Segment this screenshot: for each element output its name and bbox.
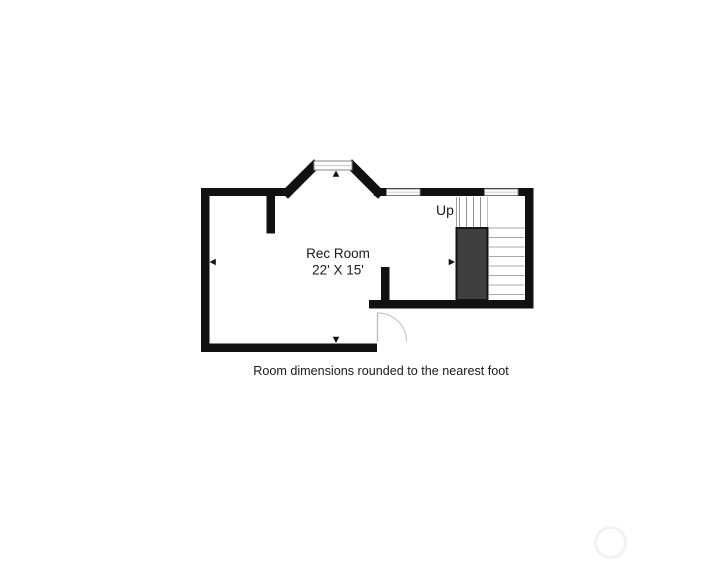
room-dimensions-label: 22' X 15' xyxy=(312,263,364,278)
window-top-right xyxy=(485,189,519,195)
wall-right xyxy=(525,188,534,309)
room-label: Rec Room xyxy=(306,246,370,261)
bay-window xyxy=(314,161,352,170)
wall-stairs-bottom xyxy=(369,300,534,309)
stair-enclosure-wall xyxy=(457,228,488,300)
caption-text: Room dimensions rounded to the nearest f… xyxy=(253,364,509,378)
window-top-left xyxy=(387,189,421,195)
stairs-up-label: Up xyxy=(436,202,454,218)
wall-top-left xyxy=(201,188,290,196)
wall-interior-stub xyxy=(267,196,276,234)
floorplan-canvas: Rec Room 22' X 15' Up Room dimensions ro… xyxy=(0,0,720,563)
wall-left xyxy=(201,188,210,352)
background xyxy=(0,0,720,563)
wall-bottom xyxy=(201,344,377,353)
wall-door-jamb-stub xyxy=(381,267,390,303)
floorplan-diagram: Rec Room 22' X 15' Up Room dimensions ro… xyxy=(0,0,720,563)
